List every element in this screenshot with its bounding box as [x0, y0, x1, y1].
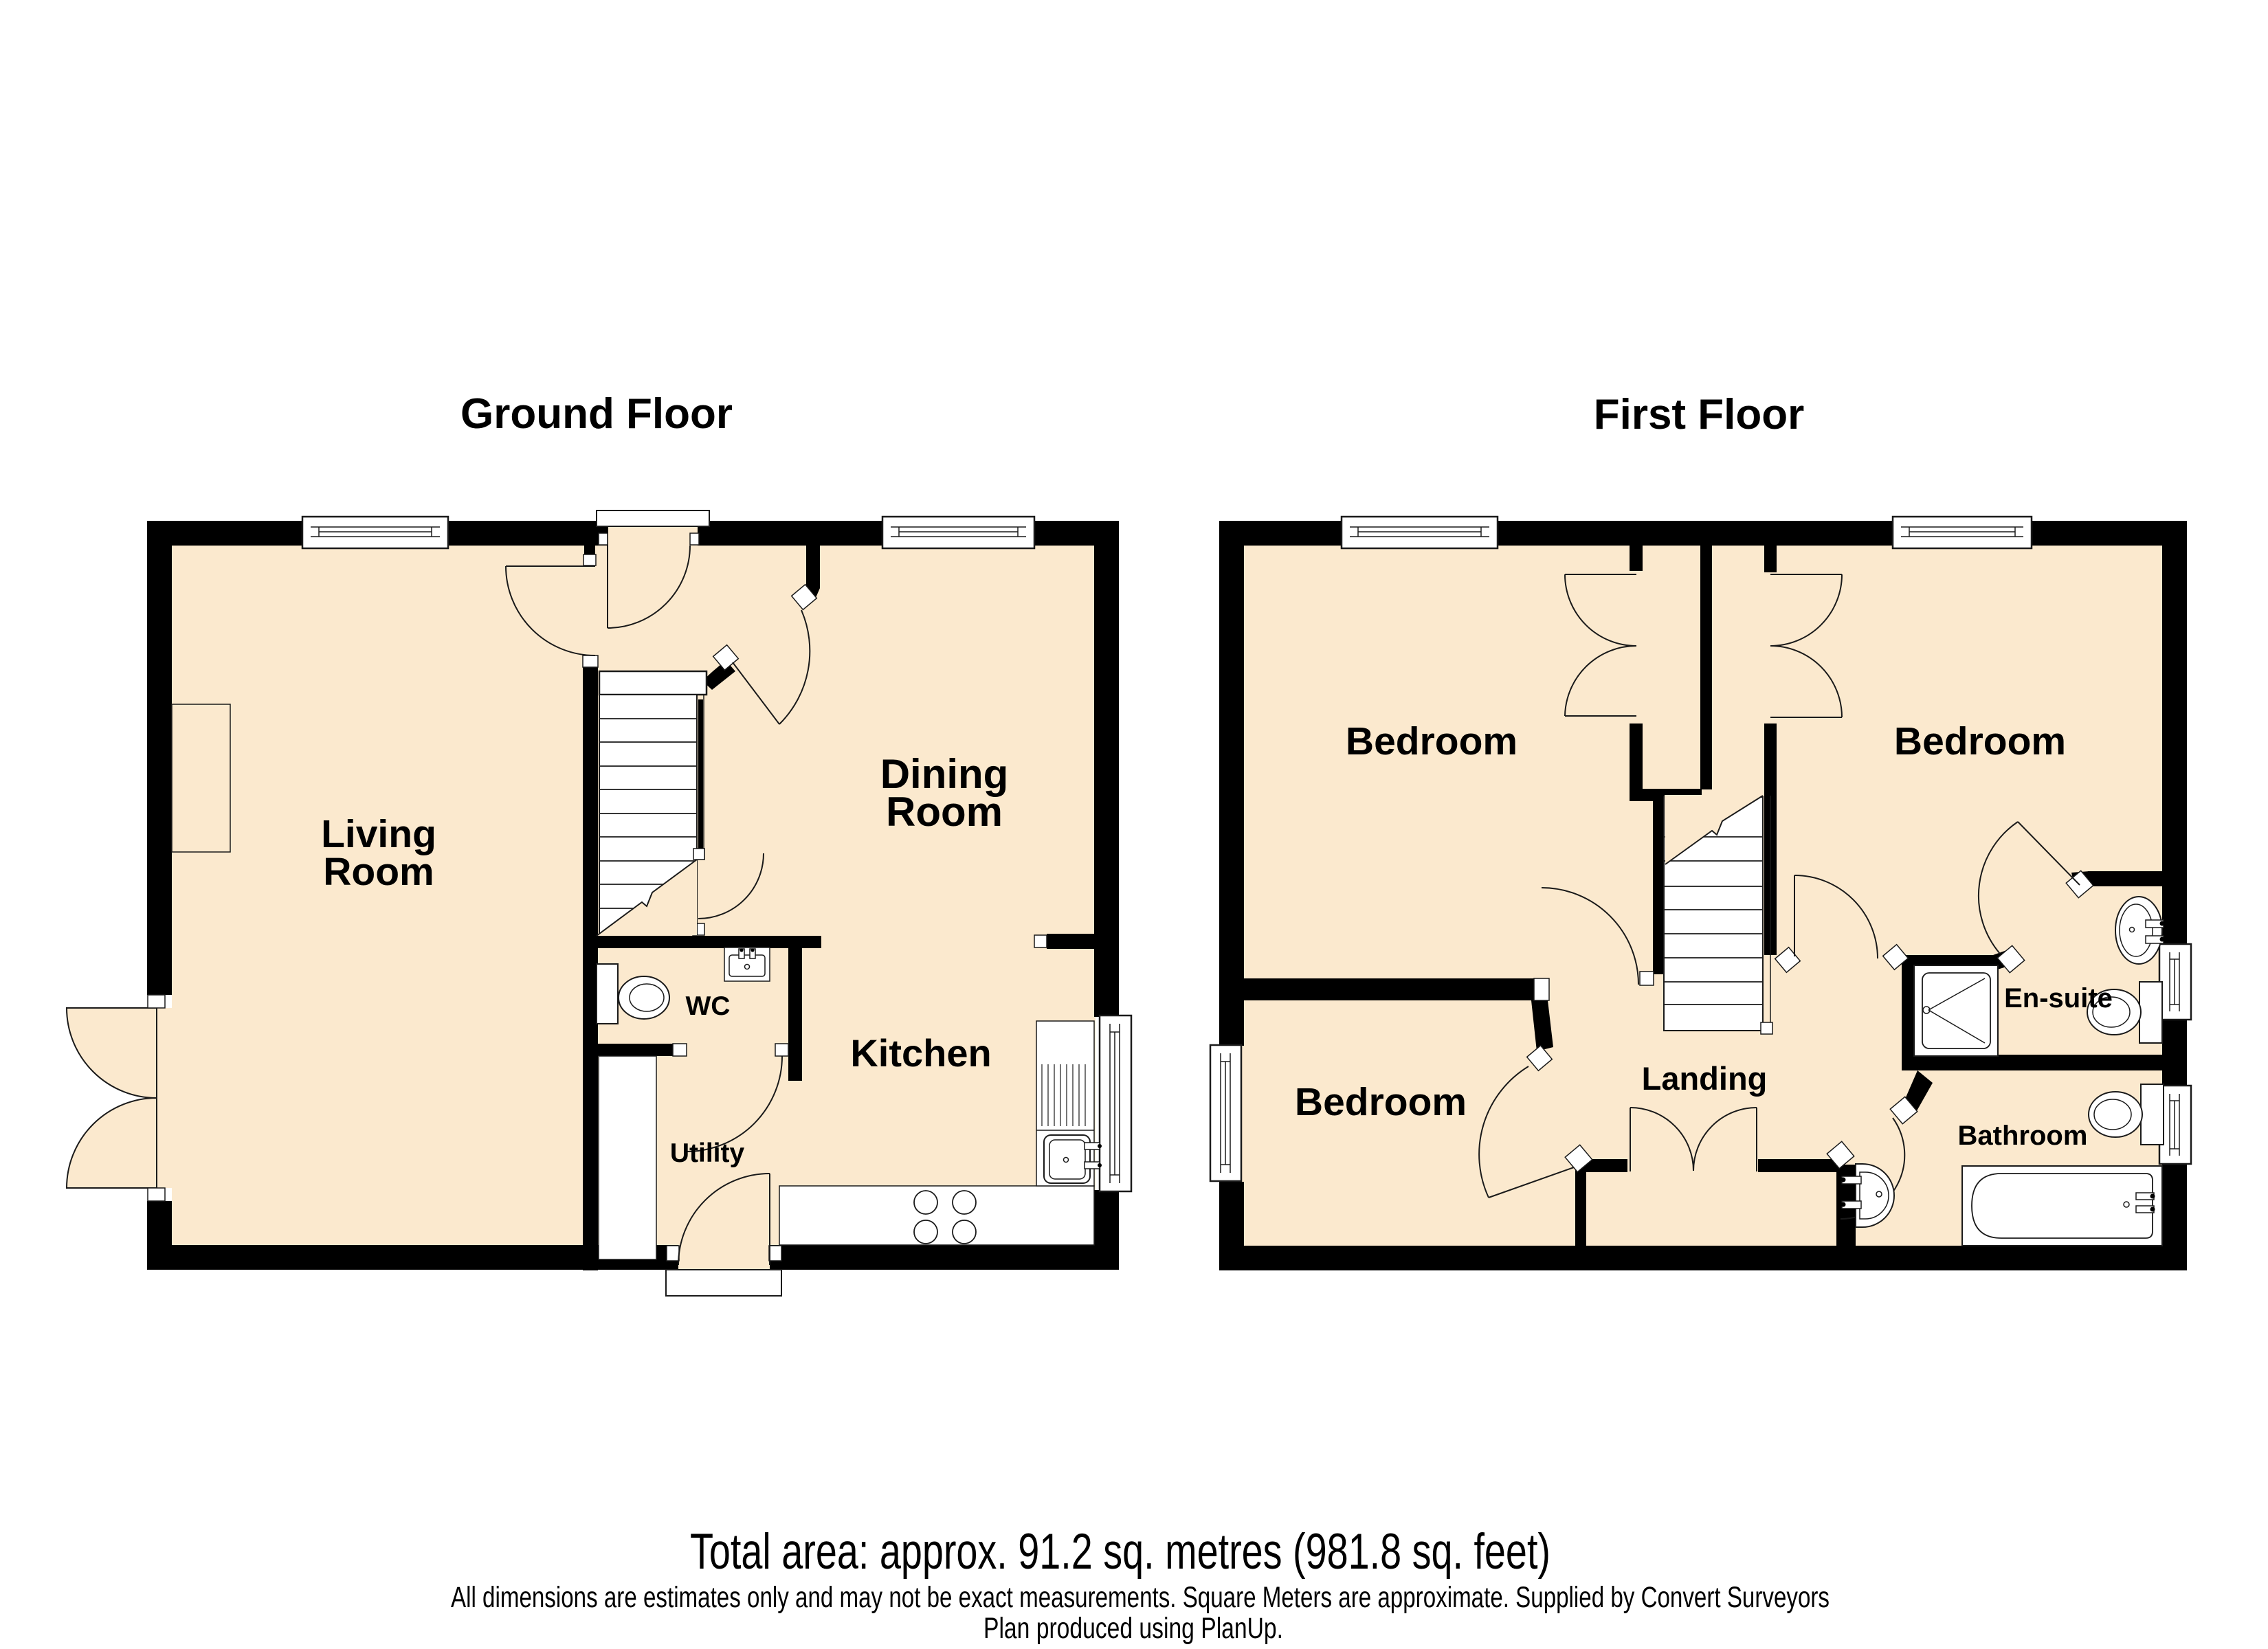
- svg-text:Bedroom: Bedroom: [1894, 719, 2066, 763]
- svg-text:First Floor: First Floor: [1594, 391, 1805, 438]
- svg-text:All dimensions are estimates o: All dimensions are estimates only and ma…: [451, 1581, 1830, 1614]
- svg-text:Bedroom: Bedroom: [1295, 1080, 1467, 1124]
- svg-text:Room: Room: [323, 850, 434, 894]
- svg-text:Total area: approx. 91.2 sq. m: Total area: approx. 91.2 sq. metres (981…: [690, 1524, 1550, 1580]
- svg-text:En-suite: En-suite: [2004, 983, 2113, 1013]
- svg-text:Ground Floor: Ground Floor: [460, 390, 733, 438]
- svg-text:Utility: Utility: [670, 1138, 745, 1168]
- svg-text:Landing: Landing: [1642, 1060, 1768, 1097]
- svg-text:Bathroom: Bathroom: [1958, 1121, 2088, 1151]
- svg-text:Plan produced using PlanUp.: Plan produced using PlanUp.: [983, 1612, 1283, 1645]
- svg-text:Kitchen: Kitchen: [850, 1031, 991, 1075]
- svg-text:Room: Room: [886, 789, 1003, 835]
- svg-text:Bedroom: Bedroom: [1346, 719, 1517, 763]
- svg-text:WC: WC: [686, 991, 731, 1021]
